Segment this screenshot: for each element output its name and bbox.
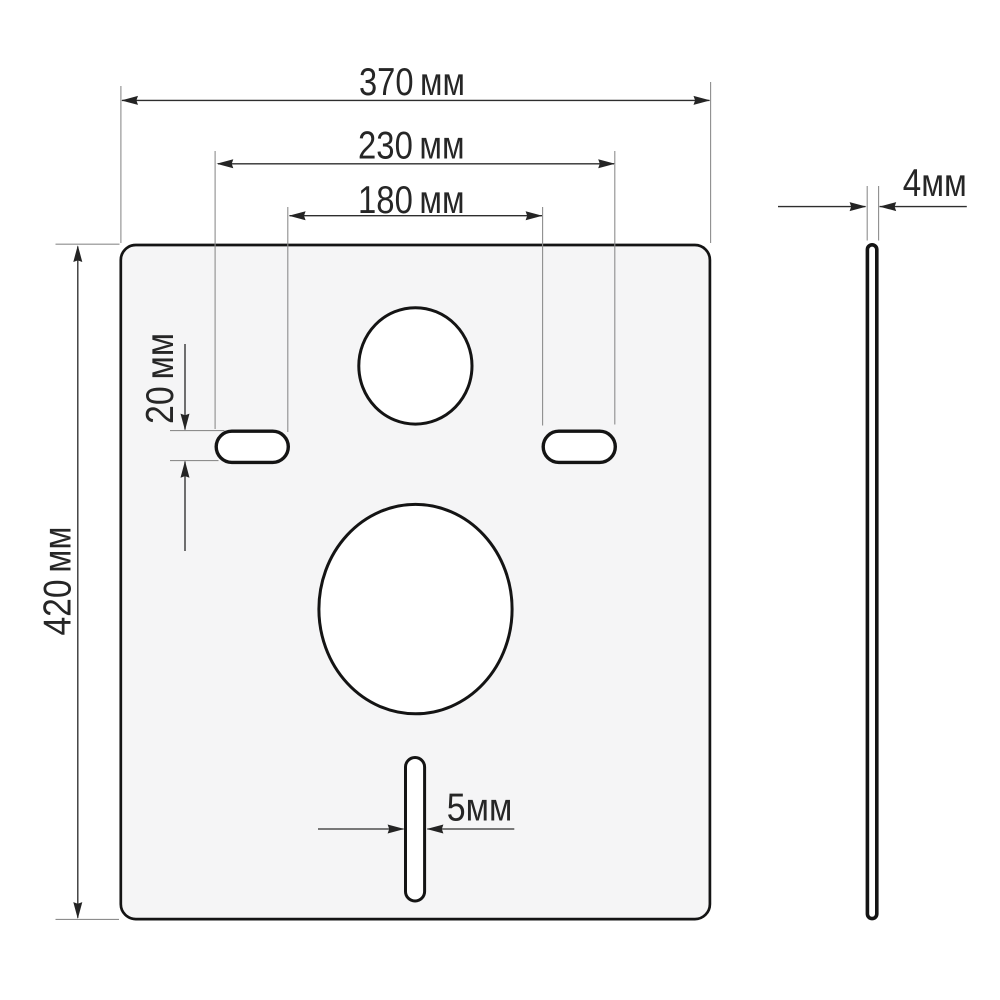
svg-text:5мм: 5мм (447, 787, 513, 830)
svg-text:20 мм: 20 мм (139, 333, 182, 424)
svg-text:370 мм: 370 мм (359, 61, 465, 104)
svg-text:180 мм: 180 мм (358, 179, 465, 222)
svg-text:4мм: 4мм (903, 162, 967, 205)
svg-text:420 мм: 420 мм (37, 527, 80, 636)
svg-text:230 мм: 230 мм (358, 124, 465, 167)
